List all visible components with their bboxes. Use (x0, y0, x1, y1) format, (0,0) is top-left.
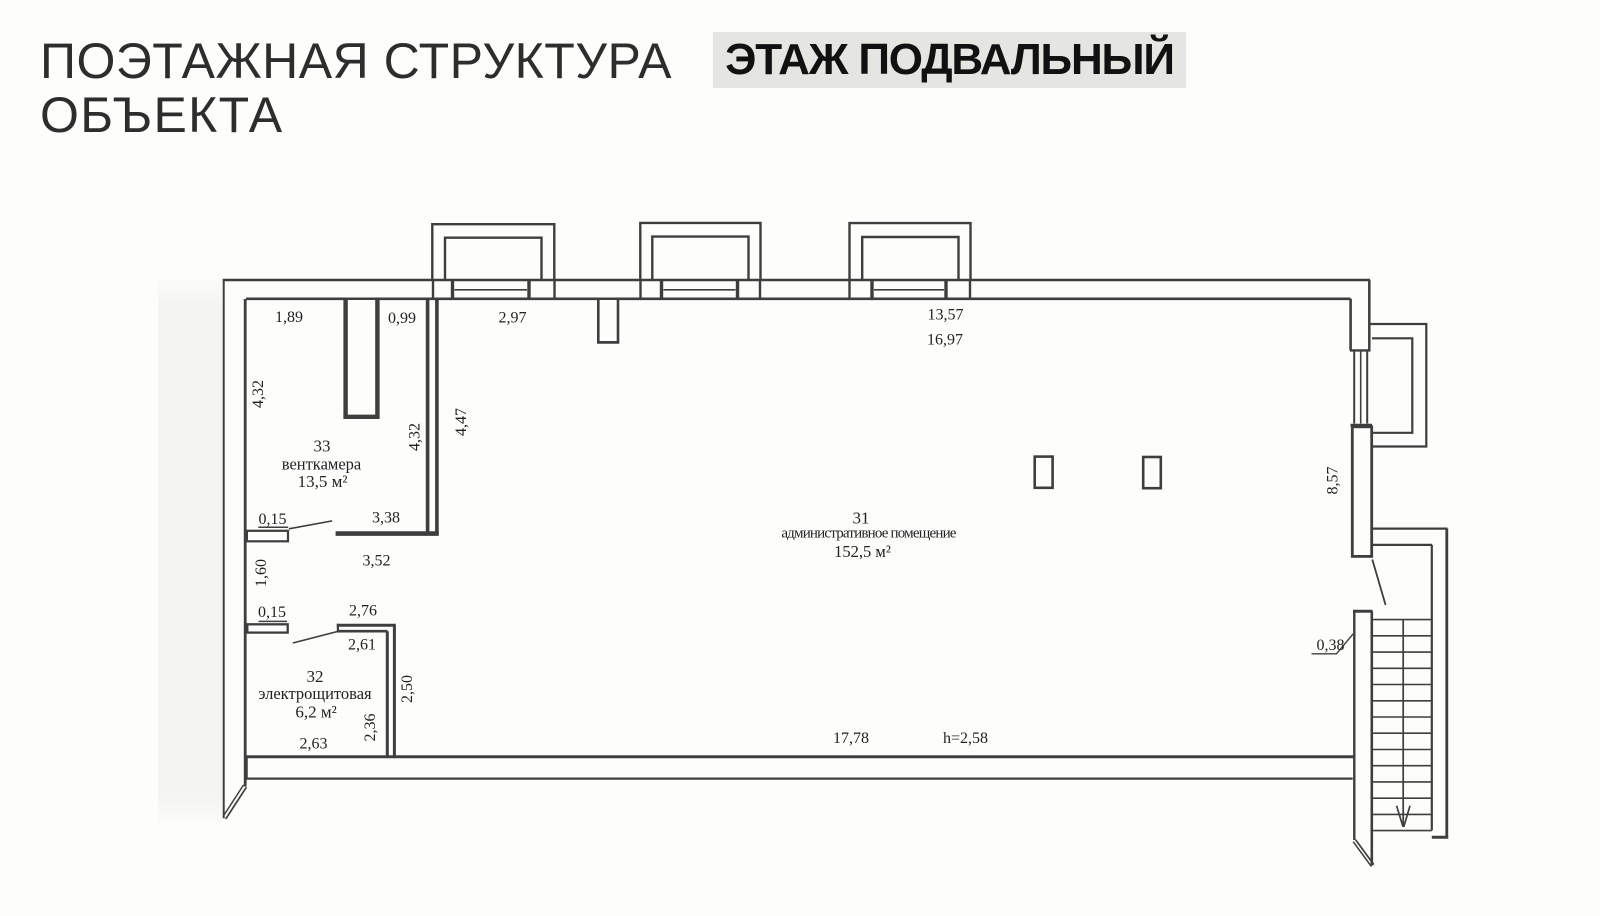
svg-text:4,32: 4,32 (250, 380, 267, 408)
svg-text:0,15: 0,15 (258, 604, 286, 621)
svg-text:4,47: 4,47 (453, 408, 470, 436)
svg-text:2,97: 2,97 (499, 310, 527, 327)
svg-text:2,50: 2,50 (399, 675, 416, 703)
svg-text:административное помещение: административное помещение (781, 526, 956, 542)
svg-text:16,97: 16,97 (927, 332, 963, 349)
svg-text:венткамера: венткамера (282, 455, 362, 474)
svg-text:3,38: 3,38 (372, 510, 400, 527)
svg-text:0,99: 0,99 (388, 310, 416, 327)
svg-text:13,5 м²: 13,5 м² (298, 472, 348, 491)
svg-text:1,89: 1,89 (275, 309, 303, 326)
svg-text:1,60: 1,60 (253, 559, 270, 587)
svg-text:0,15: 0,15 (259, 511, 287, 528)
svg-text:8,57: 8,57 (1325, 467, 1342, 495)
svg-text:33: 33 (314, 437, 331, 456)
svg-text:2,36: 2,36 (362, 714, 379, 742)
svg-text:152,5 м²: 152,5 м² (834, 542, 891, 561)
svg-text:2,76: 2,76 (349, 603, 377, 620)
svg-text:h=2,58: h=2,58 (943, 730, 988, 747)
svg-text:электрощитовая: электрощитовая (258, 684, 372, 703)
svg-text:17,78: 17,78 (833, 730, 869, 747)
svg-text:0,38: 0,38 (1317, 637, 1345, 654)
svg-text:4,32: 4,32 (407, 423, 424, 451)
svg-text:3,52: 3,52 (363, 553, 391, 570)
svg-text:13,57: 13,57 (928, 307, 964, 324)
svg-text:2,61: 2,61 (348, 637, 376, 654)
svg-text:2,63: 2,63 (300, 736, 328, 753)
svg-text:6,2 м²: 6,2 м² (295, 703, 336, 722)
